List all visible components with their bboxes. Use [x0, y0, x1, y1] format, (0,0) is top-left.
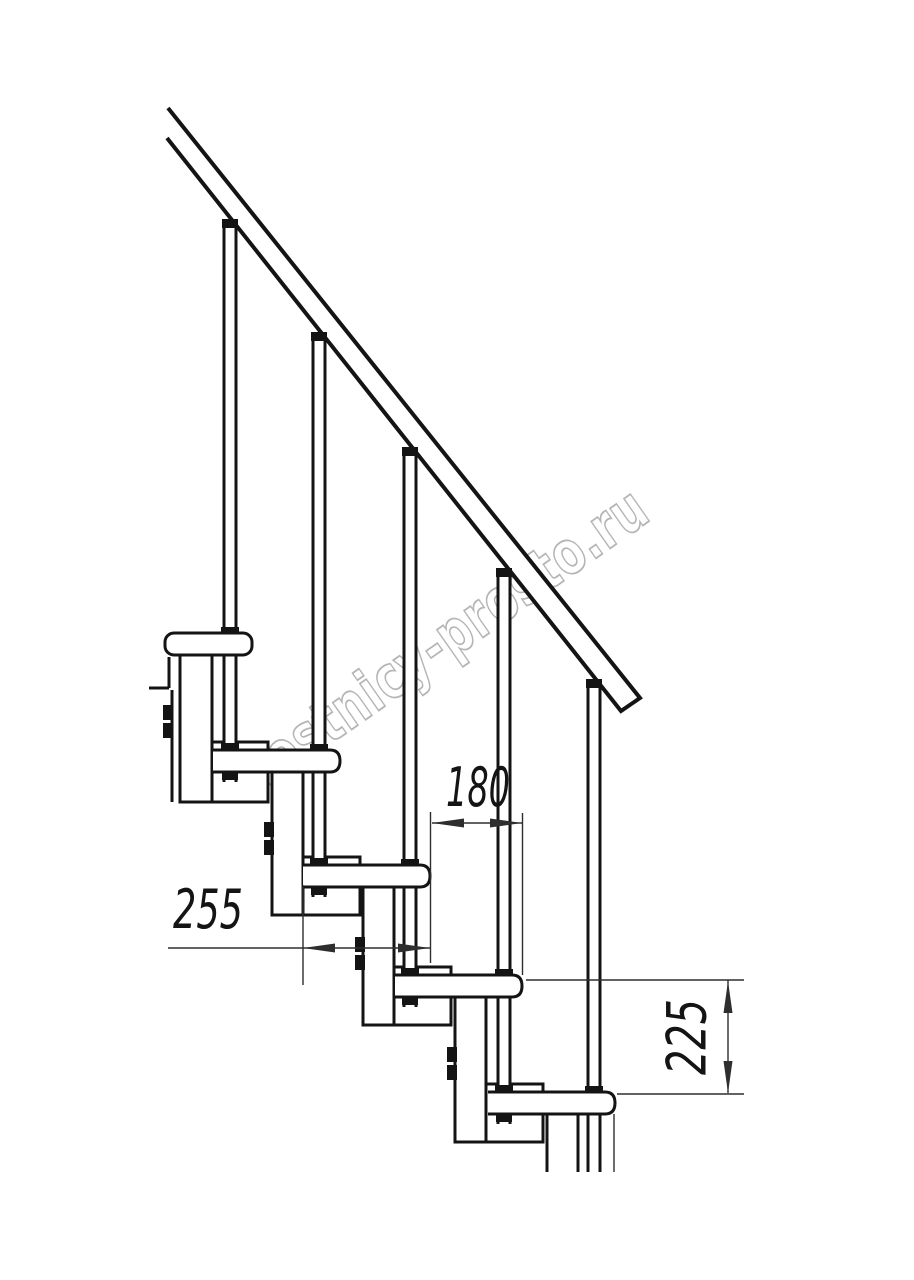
support-module-1 [149, 655, 268, 802]
rail-cap [496, 568, 512, 577]
baluster-2 [313, 339, 325, 897]
baluster-rod-fill [315, 339, 324, 897]
module-column [272, 772, 303, 915]
rail-cap [311, 332, 327, 341]
module-bolt [163, 705, 173, 720]
staircase-elevation-drawing: lestnicy-prosto.ru [0, 0, 914, 1280]
baluster-rod-fill [406, 454, 415, 1007]
module-bolt [355, 937, 365, 952]
technical-drawing-canvas: lestnicy-prosto.ru [0, 0, 914, 1280]
module-column [180, 655, 212, 802]
tread-3 [303, 865, 430, 887]
baluster-nut [311, 887, 327, 895]
module-bolt [163, 723, 173, 738]
tread-2 [213, 750, 340, 772]
arrowhead-left [432, 819, 464, 828]
dimension-label-225: 225 [656, 999, 719, 1075]
tread-5 [488, 1092, 615, 1114]
dimension-step-rise: 225 [526, 980, 744, 1094]
support-module-5 [547, 1114, 614, 1172]
tread-plate [213, 750, 340, 772]
rail-cap [586, 679, 602, 688]
tread-collar [585, 1086, 603, 1093]
baluster-3 [404, 454, 416, 1007]
arrowhead-down [724, 1061, 733, 1093]
baluster-rod-fill [226, 226, 235, 782]
module-bolt [447, 1065, 457, 1080]
module-bolt [355, 955, 365, 970]
tread-plate [488, 1092, 615, 1114]
module-column [455, 997, 486, 1142]
baluster-foot [310, 858, 328, 866]
baluster-foot [221, 743, 239, 751]
arrowhead-left [303, 944, 335, 953]
dimension-label-255: 255 [173, 878, 243, 941]
baluster-nut [222, 772, 238, 780]
support-module-4 [447, 997, 543, 1142]
tread-collar [310, 744, 328, 751]
tread-plate [165, 633, 252, 655]
rail-cap [402, 447, 418, 456]
tread-collar [401, 859, 419, 866]
baluster-1 [224, 226, 236, 782]
baluster-rod-fill [500, 575, 509, 1124]
baluster-nut [402, 997, 418, 1005]
arrowhead-up [724, 981, 733, 1013]
module-bolt [447, 1047, 457, 1062]
tread-plate [303, 865, 430, 887]
dimension-label-180: 180 [446, 756, 510, 819]
baluster-foot [495, 1085, 513, 1093]
module-column-fill [549, 1114, 577, 1172]
baluster-4 [498, 575, 510, 1124]
module-column [363, 887, 394, 1025]
tread-collar [495, 969, 513, 976]
tread-1 [165, 633, 252, 655]
tread-collar [221, 627, 239, 634]
tread-plate [395, 975, 522, 997]
baluster-nut [496, 1114, 512, 1122]
module-bolt [264, 822, 274, 837]
module-bolt [264, 840, 274, 855]
baluster-foot [401, 968, 419, 976]
rail-cap [222, 219, 238, 228]
tread-4 [395, 975, 522, 997]
